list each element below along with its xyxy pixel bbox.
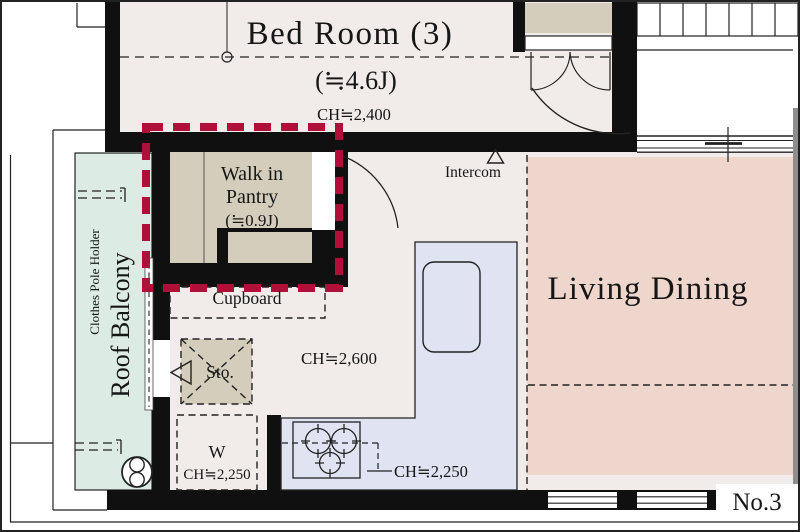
clothes-pole-holder-label: Clothes Pole Holder bbox=[87, 229, 102, 335]
balcony-door-opening bbox=[152, 340, 170, 397]
cupboard-label: Cupboard bbox=[212, 288, 281, 308]
bedroom-size-label: (≒4.6J) bbox=[315, 66, 397, 95]
pantry-size-label: (≒0.9J) bbox=[225, 211, 278, 230]
bottom-window-1 bbox=[548, 492, 617, 508]
bottom-window-2 bbox=[637, 492, 707, 508]
washer-ceiling-label: CH≒2,250 bbox=[183, 467, 250, 483]
pantry-name-line1: Walk in bbox=[221, 163, 283, 185]
living-dining-floor bbox=[527, 157, 793, 475]
bedroom-name-label: Bed Room (3) bbox=[247, 16, 454, 52]
drain-symbol bbox=[122, 457, 152, 487]
closet-door-track bbox=[525, 36, 612, 50]
bedroom-ceiling-label: CH≒2,400 bbox=[317, 105, 391, 124]
pantry-name-line2: Pantry bbox=[226, 186, 278, 208]
intercom-label: Intercom bbox=[445, 164, 501, 181]
kitchen-ceiling-label: CH≒2,600 bbox=[301, 349, 377, 368]
pantry-door-opening bbox=[312, 152, 335, 230]
bedroom-closet bbox=[525, 3, 612, 33]
roof-balcony-label: Roof Balcony bbox=[106, 252, 135, 397]
washer-label: W bbox=[209, 442, 226, 462]
floor-plan-canvas: Bed Room (3) (≒4.6J) CH≒2,400 Walk in Pa… bbox=[0, 0, 800, 532]
storage-label: Sto. bbox=[206, 362, 234, 382]
outer-corridor bbox=[637, 36, 793, 136]
counter-ceiling-label: CH≒2,250 bbox=[394, 462, 468, 481]
living-dining-label: Living Dining bbox=[548, 271, 749, 307]
floor-plan: Bed Room (3) (≒4.6J) CH≒2,400 Walk in Pa… bbox=[0, 0, 800, 532]
unit-number-label: No.3 bbox=[732, 489, 781, 516]
